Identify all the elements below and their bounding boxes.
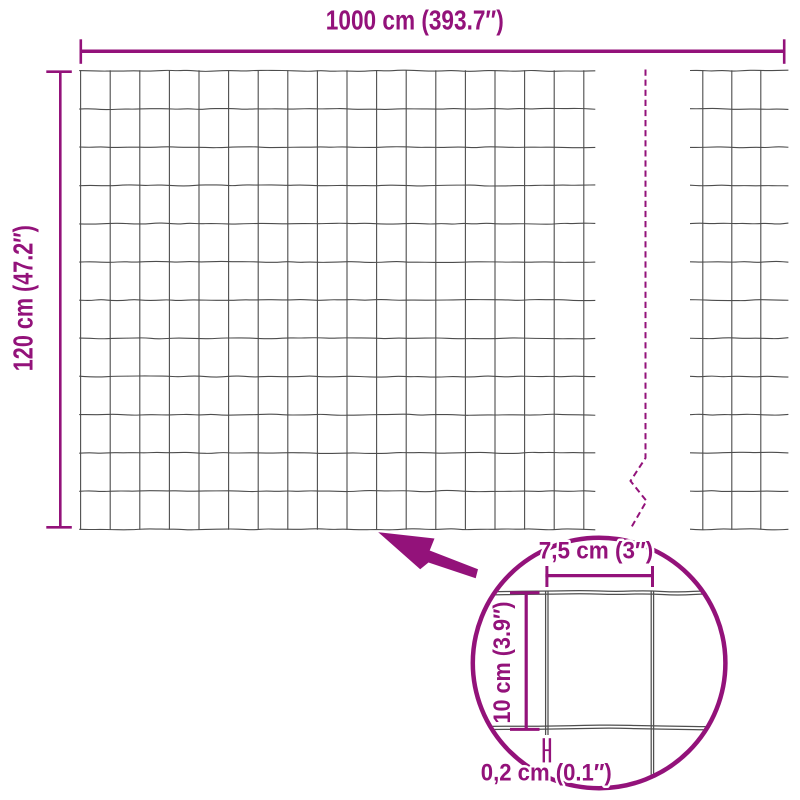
svg-text:1000 cm (393.7″): 1000 cm (393.7″) xyxy=(326,4,504,35)
svg-text:7,5 cm (3″): 7,5 cm (3″) xyxy=(539,537,654,564)
svg-text:120 cm (47.2″): 120 cm (47.2″) xyxy=(8,225,39,371)
svg-text:0,2 cm (0.1″): 0,2 cm (0.1″) xyxy=(481,759,612,786)
svg-text:10 cm (3.9″): 10 cm (3.9″) xyxy=(489,602,516,724)
